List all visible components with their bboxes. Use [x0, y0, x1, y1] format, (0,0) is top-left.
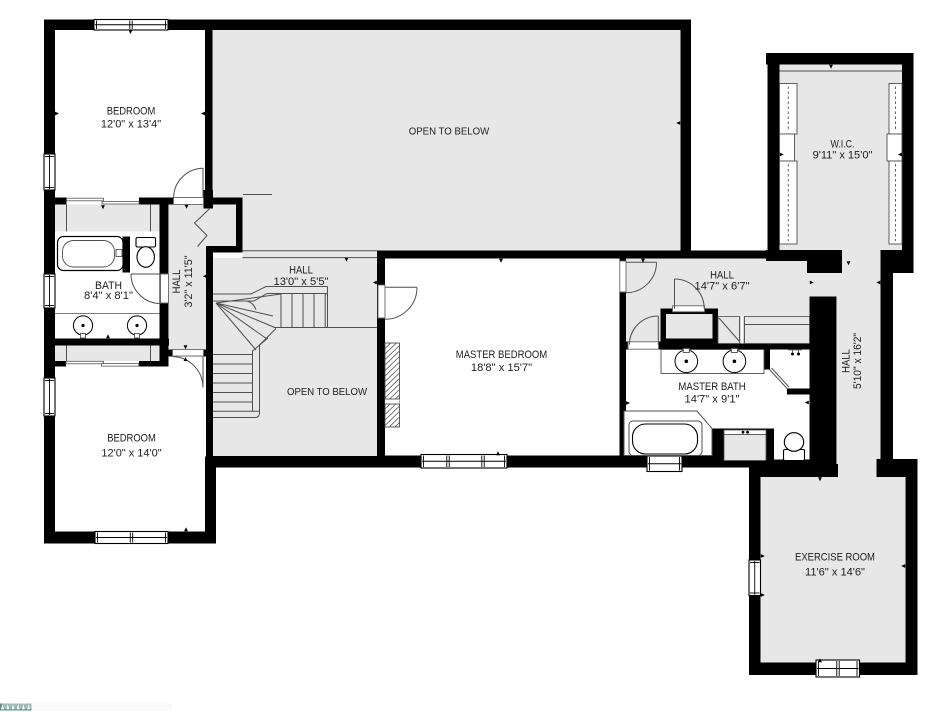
svg-text:13'0" x 5'5": 13'0" x 5'5" [274, 276, 329, 288]
svg-text:OPEN TO BELOW: OPEN TO BELOW [409, 127, 490, 138]
svg-text:9'11" x 15'0": 9'11" x 15'0" [813, 149, 873, 161]
svg-text:HALL: HALL [171, 270, 183, 294]
svg-text:14'7" x 9'1": 14'7" x 9'1" [685, 393, 740, 405]
svg-text:12'0" x 14'0": 12'0" x 14'0" [101, 447, 161, 459]
svg-text:12'0" x 13'4": 12'0" x 13'4" [101, 119, 161, 131]
svg-text:14'7" x 6'7": 14'7" x 6'7" [695, 281, 750, 293]
svg-text:18'8" x 15'7": 18'8" x 15'7" [471, 362, 532, 374]
svg-text:3'2" x 11'5": 3'2" x 11'5" [183, 255, 195, 307]
svg-text:5'10" x 16'2": 5'10" x 16'2" [852, 333, 864, 389]
svg-text:11'6" x 14'6": 11'6" x 14'6" [805, 566, 865, 578]
svg-text:BEDROOM: BEDROOM [107, 105, 156, 117]
svg-text:BEDROOM: BEDROOM [107, 432, 156, 444]
svg-text:MASTER BATH: MASTER BATH [678, 381, 745, 393]
svg-text:8'4" x 8'1": 8'4" x 8'1" [84, 290, 133, 302]
svg-text:OPEN TO BELOW: OPEN TO BELOW [287, 387, 367, 398]
svg-text:HALL: HALL [840, 349, 852, 373]
svg-text:MASTER BEDROOM: MASTER BEDROOM [456, 349, 547, 361]
svg-text:HALL: HALL [289, 265, 313, 277]
svg-text:EXERCISE ROOM: EXERCISE ROOM [795, 552, 875, 564]
